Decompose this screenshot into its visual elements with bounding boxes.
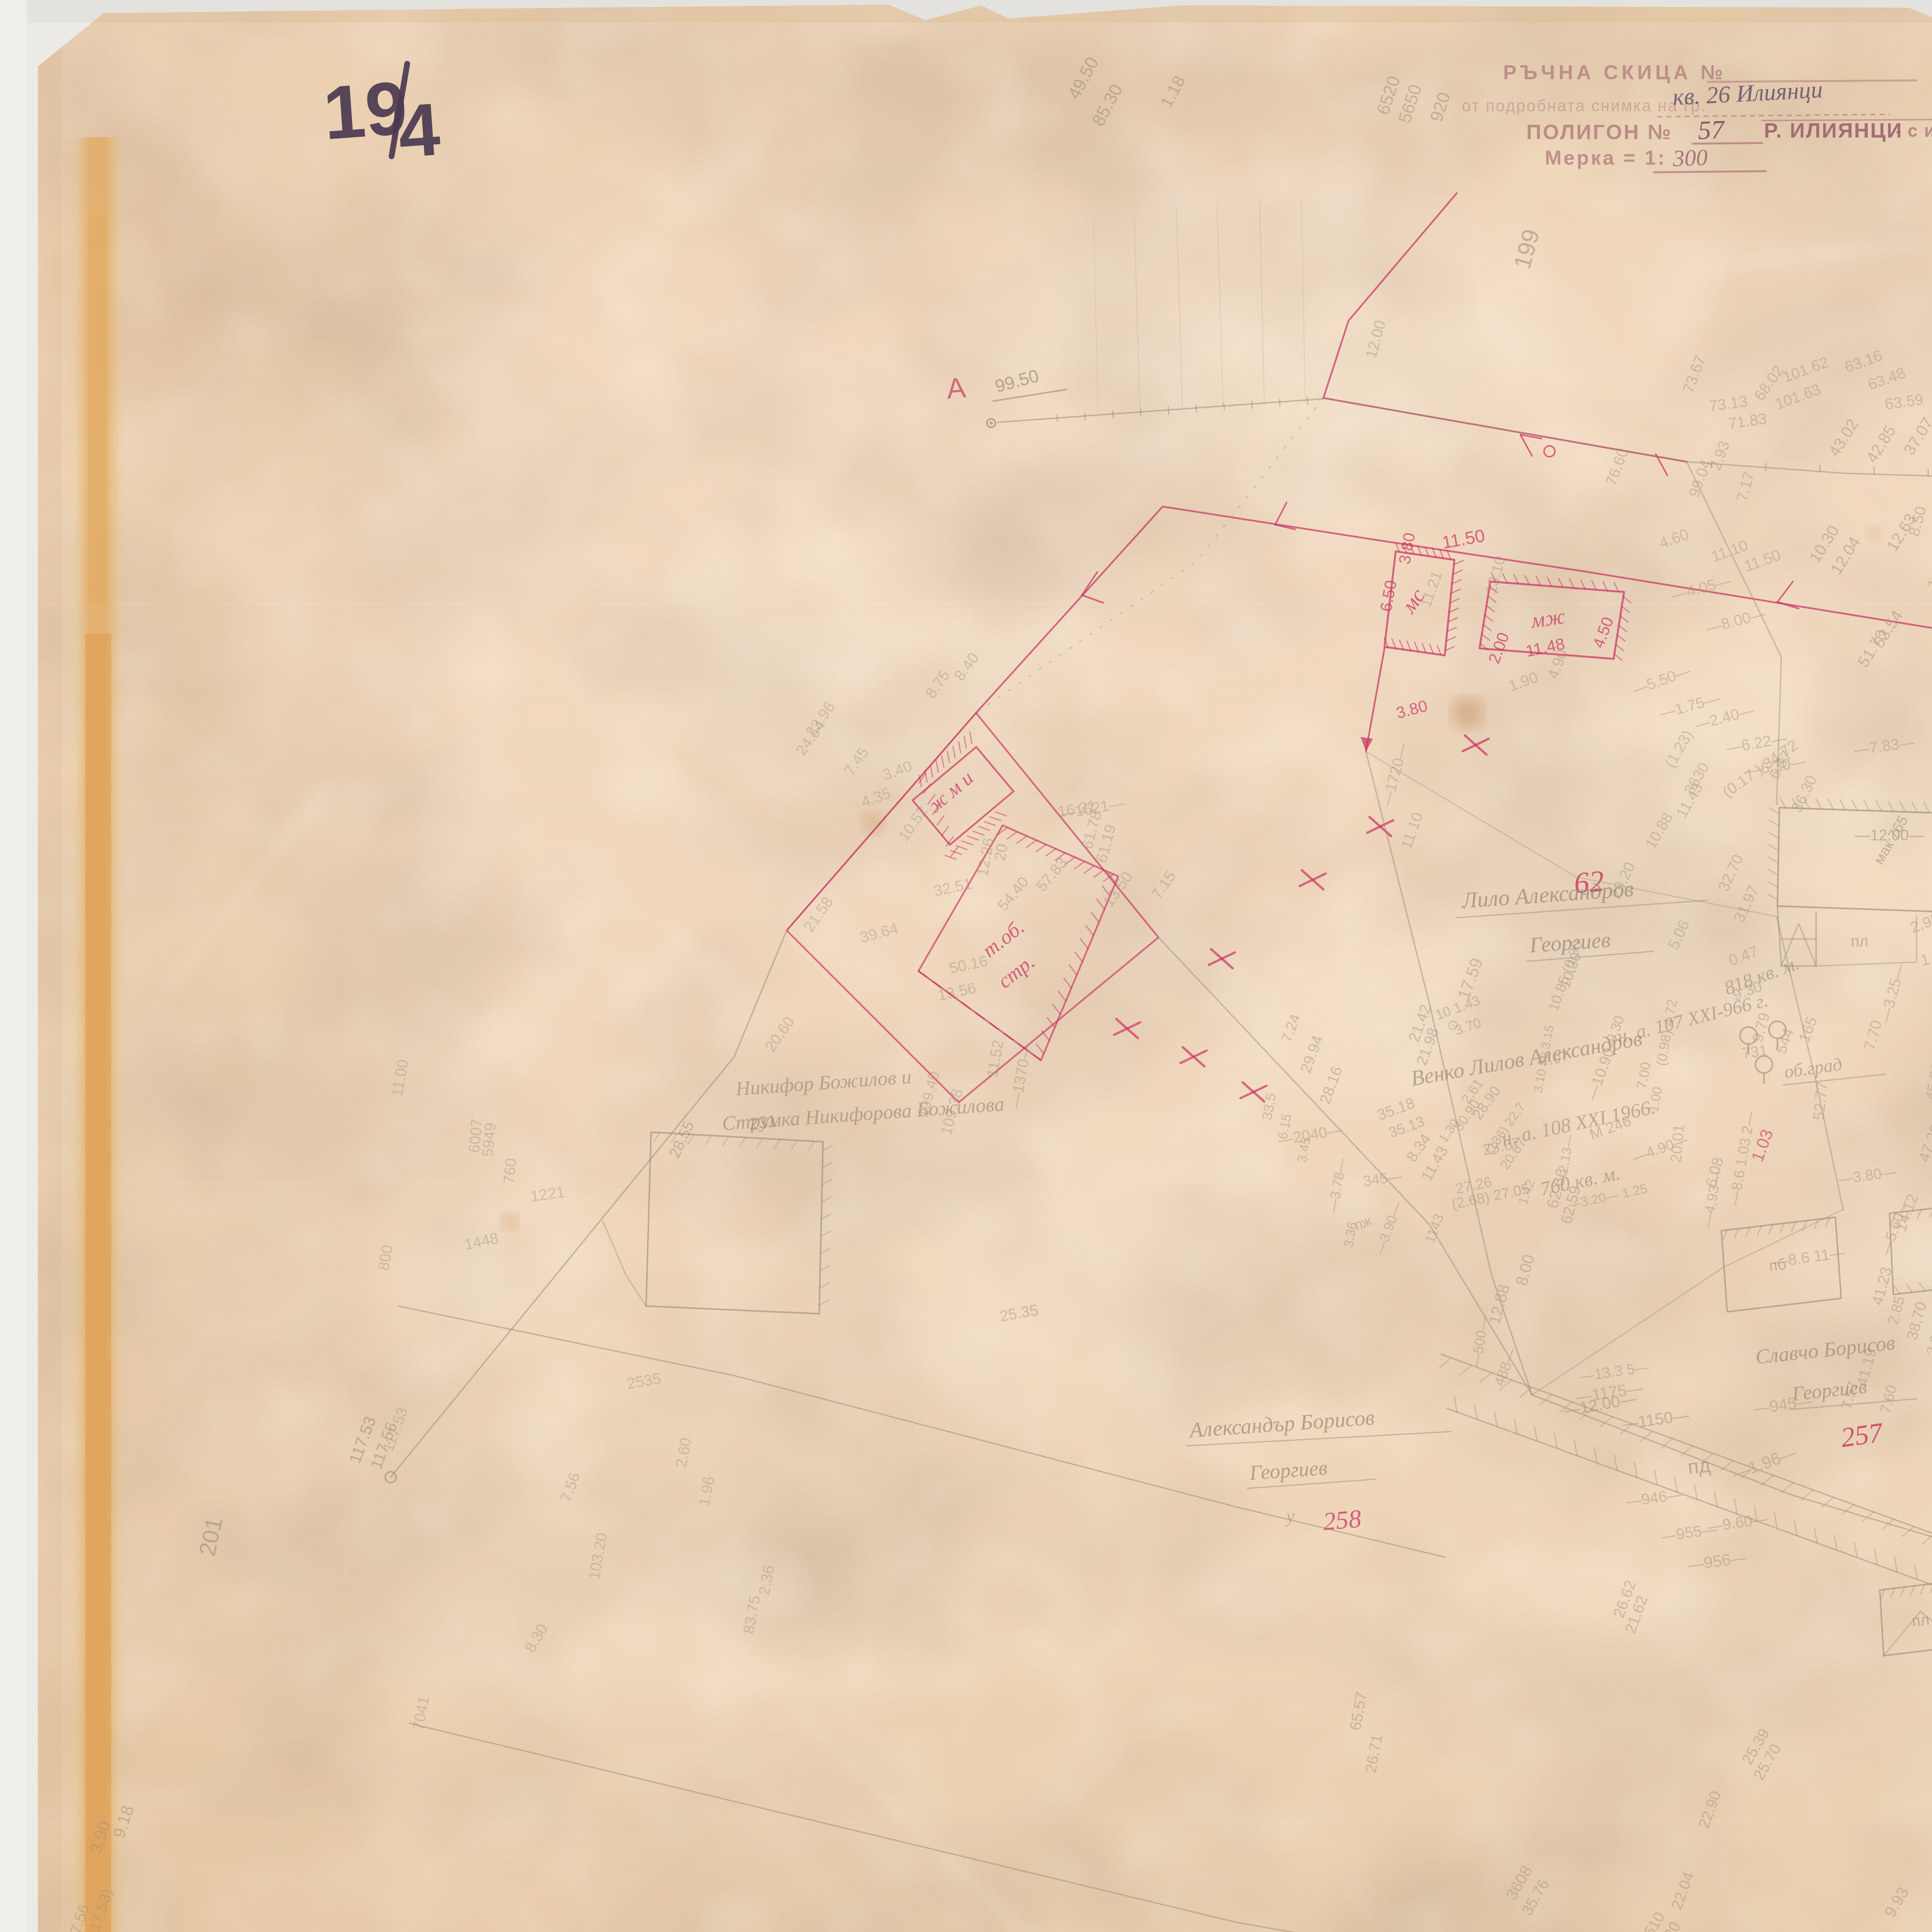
svg-text:мж: мж bbox=[1529, 604, 1566, 633]
svg-text:пд: пд bbox=[1687, 1454, 1711, 1478]
svg-text:⊙: ⊙ bbox=[1447, 1017, 1459, 1033]
svg-text:ПОЛИГОН №: ПОЛИГОН № bbox=[1526, 120, 1672, 143]
svg-text:РЪЧНА СКИЦА №: РЪЧНА СКИЦА № bbox=[1503, 61, 1726, 83]
svg-text:258: 258 bbox=[1322, 1504, 1362, 1536]
svg-text:257: 257 bbox=[1839, 1417, 1886, 1453]
svg-text:731: 731 bbox=[1741, 1041, 1769, 1062]
svg-text:от подробната снимка на гр.: от подробната снимка на гр. bbox=[1462, 97, 1707, 115]
svg-text:300: 300 bbox=[1672, 145, 1708, 171]
svg-text:52.77: 52.77 bbox=[1810, 1081, 1830, 1121]
svg-text:- с индустриална зона гр. Софи: - с индустриална зона гр. София bbox=[1895, 121, 1932, 141]
svg-text:760: 760 bbox=[500, 1157, 519, 1184]
svg-text:A: A bbox=[945, 371, 967, 405]
svg-text:пл: пл bbox=[1851, 933, 1868, 950]
svg-text:4: 4 bbox=[396, 87, 443, 173]
svg-text:Р. ИЛИЯНЦИ: Р. ИЛИЯНЦИ bbox=[1764, 119, 1903, 142]
svg-text:20: 20 bbox=[991, 842, 1011, 862]
svg-text:57: 57 bbox=[1697, 115, 1726, 145]
svg-text:6007: 6007 bbox=[465, 1118, 485, 1153]
svg-text:пл: пл bbox=[1911, 1611, 1930, 1630]
svg-text:Мерка = 1:: Мерка = 1: bbox=[1545, 146, 1666, 169]
